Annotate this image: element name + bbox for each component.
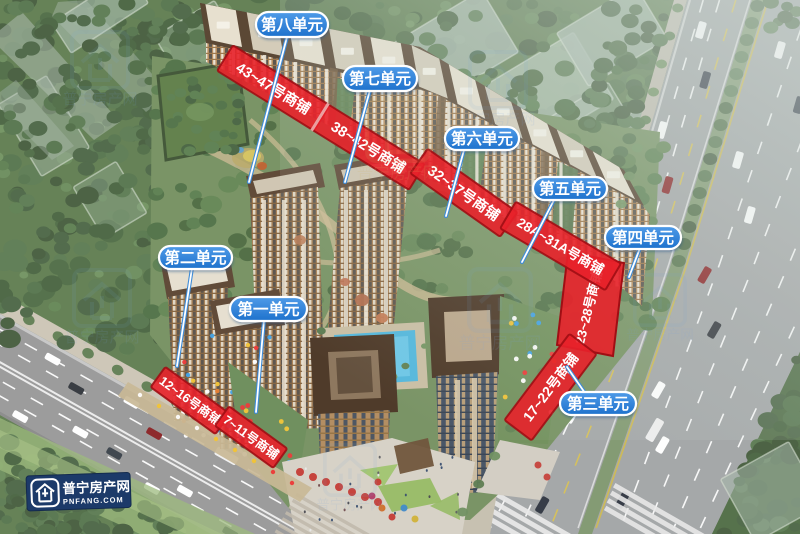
- svg-text:普宁房产网: 普宁房产网: [460, 111, 535, 128]
- svg-text:普宁房产网: 普宁房产网: [357, 163, 440, 182]
- svg-text:普宁房产网: 普宁房产网: [62, 91, 137, 108]
- svg-text:普宁房产网: 普宁房产网: [64, 329, 139, 346]
- svg-text:普宁房产网: 普宁房产网: [62, 478, 130, 496]
- svg-text:第二单元: 第二单元: [164, 248, 227, 267]
- svg-text:普宁房产网: 普宁房产网: [626, 327, 694, 343]
- svg-text:第七单元: 第七单元: [349, 69, 412, 88]
- svg-text:第三单元: 第三单元: [567, 394, 630, 413]
- svg-text:第五单元: 第五单元: [539, 179, 602, 198]
- svg-text:普宁房产网: 普宁房产网: [459, 333, 542, 352]
- svg-text:第一单元: 第一单元: [237, 300, 300, 319]
- svg-text:第六单元: 第六单元: [451, 129, 514, 148]
- svg-text:第八单元: 第八单元: [261, 15, 324, 34]
- svg-text:第四单元: 第四单元: [612, 228, 675, 247]
- svg-text:普宁房产网: 普宁房产网: [316, 497, 384, 513]
